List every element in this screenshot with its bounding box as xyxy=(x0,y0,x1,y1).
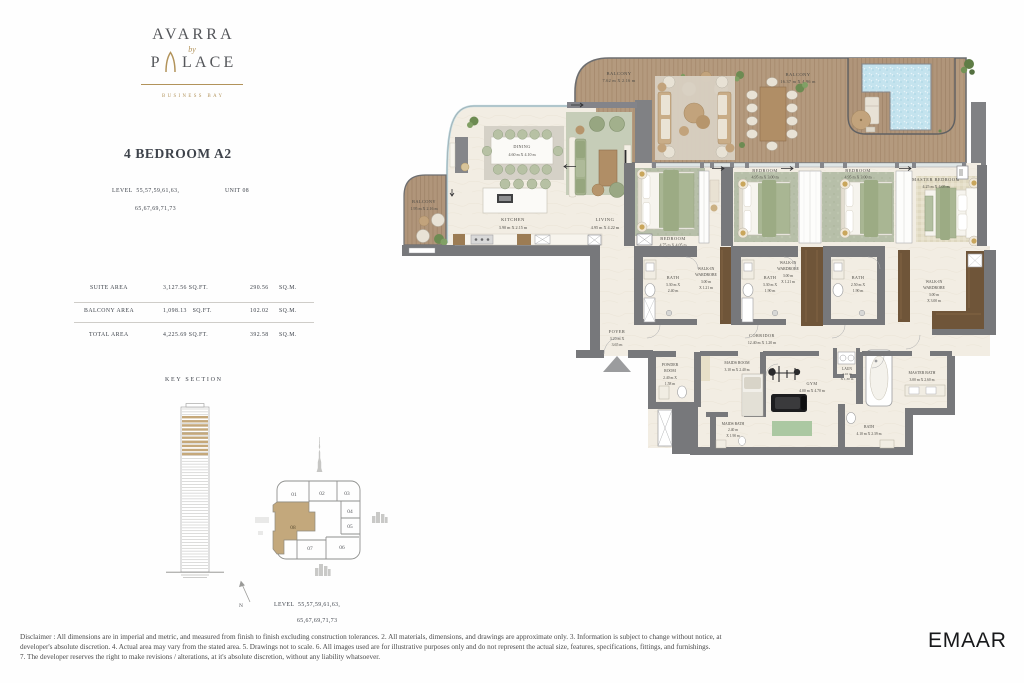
svg-text:ROOM: ROOM xyxy=(664,369,676,373)
svg-text:WARDROBE: WARDROBE xyxy=(695,273,717,277)
svg-text:WARDROBE: WARDROBE xyxy=(923,286,945,290)
svg-text:BATH: BATH xyxy=(764,275,777,280)
svg-text:KITCHEN: KITCHEN xyxy=(501,217,525,222)
svg-text:X 1.90 m: X 1.90 m xyxy=(726,434,740,438)
svg-text:BATH: BATH xyxy=(667,275,680,280)
svg-text:08: 08 xyxy=(290,525,296,531)
svg-text:FOYER: FOYER xyxy=(609,329,625,334)
svg-text:1.90 m: 1.90 m xyxy=(853,289,864,293)
svg-text:MASTER BATH: MASTER BATH xyxy=(909,371,936,375)
svg-text:05: 05 xyxy=(347,524,353,530)
svg-text:1.58 m: 1.58 m xyxy=(665,382,675,386)
svg-text:BATH: BATH xyxy=(864,425,874,429)
svg-text:4.95 m X 4.22 m: 4.95 m X 4.22 m xyxy=(591,225,620,230)
svg-text:BALCONY: BALCONY xyxy=(606,71,631,76)
svg-text:MAIDS ROOM: MAIDS ROOM xyxy=(724,361,750,365)
svg-text:BALCONY: BALCONY xyxy=(412,199,436,204)
svg-text:04: 04 xyxy=(347,509,353,515)
svg-text:4.25 m X 4.05 m: 4.25 m X 4.05 m xyxy=(922,184,950,189)
svg-text:DINING: DINING xyxy=(513,144,530,149)
svg-text:1.90 m: 1.90 m xyxy=(765,289,776,293)
svg-text:WALK-IN: WALK-IN xyxy=(698,267,715,271)
svg-text:3.65 m: 3.65 m xyxy=(612,343,623,347)
svg-text:2.40 m: 2.40 m xyxy=(668,289,679,293)
svg-text:4.10 m X 2.39 m: 4.10 m X 2.39 m xyxy=(857,432,882,436)
svg-text:3.30 m X: 3.30 m X xyxy=(666,283,680,287)
svg-text:BATH: BATH xyxy=(852,275,865,280)
svg-text:MAIDS BATH: MAIDS BATH xyxy=(722,422,745,426)
svg-text:X 1.21 m: X 1.21 m xyxy=(781,280,795,284)
svg-text:4.95 m X 3.00 m: 4.95 m X 3.00 m xyxy=(751,175,779,180)
svg-text:BALCONY: BALCONY xyxy=(785,72,810,77)
svg-text:1.95 m X 2.16 m: 1.95 m X 2.16 m xyxy=(410,206,438,211)
svg-text:3.00 m X 2.60 m: 3.00 m X 2.60 m xyxy=(910,378,935,382)
svg-text:WALK-IN: WALK-IN xyxy=(926,280,943,284)
svg-text:BEDROOM: BEDROOM xyxy=(845,168,870,173)
svg-text:MASTER BEDROOM: MASTER BEDROOM xyxy=(912,177,960,182)
svg-text:02: 02 xyxy=(319,491,325,497)
svg-text:3.00 m: 3.00 m xyxy=(701,280,711,284)
svg-text:03: 03 xyxy=(344,491,350,497)
svg-text:X 1.30 m: X 1.30 m xyxy=(841,377,854,381)
svg-text:4.00 m X 4.70 m: 4.00 m X 4.70 m xyxy=(799,389,825,393)
svg-text:2.10 m: 2.10 m xyxy=(842,372,852,376)
svg-text:WALK-IN: WALK-IN xyxy=(780,261,797,265)
svg-text:GYM: GYM xyxy=(807,381,818,386)
svg-text:3.00 m: 3.00 m xyxy=(783,274,793,278)
svg-text:LAUN: LAUN xyxy=(842,367,852,371)
svg-text:BEDROOM: BEDROOM xyxy=(752,168,777,173)
svg-text:N: N xyxy=(239,603,243,609)
svg-text:4.95 m X 3.00 m: 4.95 m X 3.00 m xyxy=(844,175,872,180)
svg-text:3.90 m X 2.15 m: 3.90 m X 2.15 m xyxy=(499,225,528,230)
svg-text:BEDROOM: BEDROOM xyxy=(660,236,685,241)
svg-text:06: 06 xyxy=(339,545,345,551)
svg-text:POWDER: POWDER xyxy=(662,363,679,367)
svg-text:07: 07 xyxy=(307,546,313,552)
svg-text:01: 01 xyxy=(291,492,297,498)
svg-text:X 1.21 m: X 1.21 m xyxy=(699,286,713,290)
svg-text:X 3.00 m: X 3.00 m xyxy=(927,299,941,303)
svg-text:3.00 m: 3.00 m xyxy=(929,293,939,297)
svg-text:2.40 m X: 2.40 m X xyxy=(663,376,677,380)
svg-text:3.30 m X: 3.30 m X xyxy=(763,283,777,287)
svg-text:16.37 m X 4.96 m: 16.37 m X 4.96 m xyxy=(780,79,816,84)
svg-text:3.10 m X 2.40 m: 3.10 m X 2.40 m xyxy=(725,368,750,372)
svg-text:7.62 m X 2.16 m: 7.62 m X 2.16 m xyxy=(603,78,636,83)
svg-text:4.60 m X 4.10 m: 4.60 m X 4.10 m xyxy=(508,152,536,157)
svg-text:2.50 m X: 2.50 m X xyxy=(851,283,865,287)
svg-text:2.40 m: 2.40 m xyxy=(728,428,738,432)
svg-text:12.40 m X 1.20 m: 12.40 m X 1.20 m xyxy=(748,341,776,345)
svg-text:LIVING: LIVING xyxy=(596,217,615,222)
